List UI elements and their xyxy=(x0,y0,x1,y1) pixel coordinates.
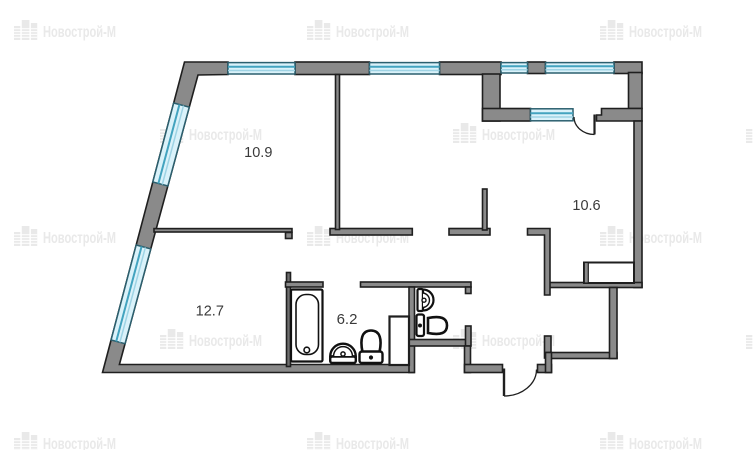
svg-text:10.9: 10.9 xyxy=(244,145,272,161)
svg-text:6.2: 6.2 xyxy=(337,311,358,328)
svg-text:12.7: 12.7 xyxy=(196,304,224,320)
svg-text:10.6: 10.6 xyxy=(572,198,600,214)
